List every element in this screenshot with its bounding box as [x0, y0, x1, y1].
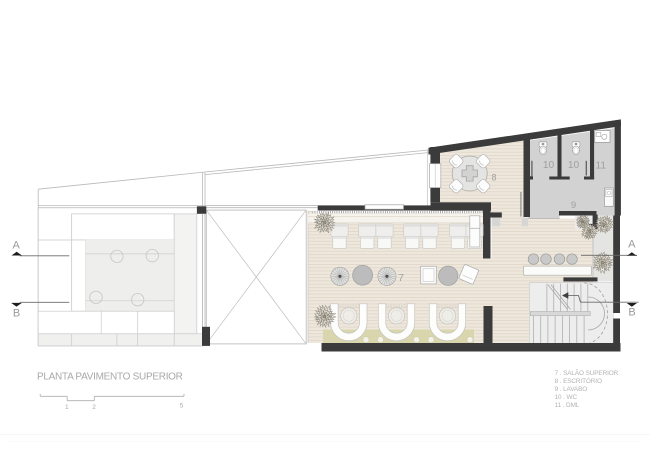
svg-text:PLANTA PAVIMENTO SUPERIOR: PLANTA PAVIMENTO SUPERIOR: [37, 372, 183, 383]
svg-text:9 . LAVABO: 9 . LAVABO: [555, 386, 588, 393]
svg-text:A: A: [13, 240, 21, 252]
svg-text:5: 5: [180, 402, 184, 409]
svg-text:10: 10: [568, 160, 580, 171]
svg-text:1: 1: [65, 404, 69, 411]
svg-text:A: A: [628, 239, 636, 251]
svg-text:9: 9: [571, 200, 576, 211]
svg-text:7: 7: [398, 272, 404, 284]
svg-text:8: 8: [491, 172, 496, 182]
svg-text:7 . SALÃO SUPERIOR: 7 . SALÃO SUPERIOR: [555, 368, 619, 377]
svg-text:10 . WC: 10 . WC: [555, 394, 578, 401]
svg-text:8 . ESCRITÓRIO: 8 . ESCRITÓRIO: [555, 376, 602, 385]
svg-text:B: B: [628, 307, 635, 319]
svg-text:B: B: [13, 308, 20, 320]
svg-text:2: 2: [92, 404, 96, 411]
svg-text:10: 10: [543, 160, 555, 171]
svg-text:11: 11: [596, 161, 607, 172]
svg-text:11 . DML: 11 . DML: [555, 402, 580, 409]
